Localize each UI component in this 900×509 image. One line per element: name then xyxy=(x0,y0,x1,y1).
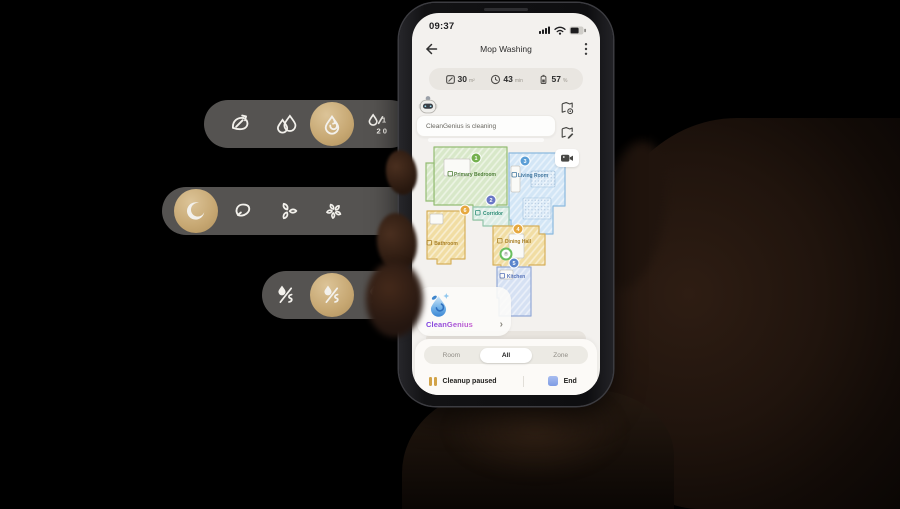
room-badge-5: 5 xyxy=(509,258,519,268)
bottom-sheet: RoomAllZone Cleanup paused End xyxy=(415,339,597,395)
scene-background: 1 2 0 09:37 Mop Washing 30m² 43min xyxy=(0,0,900,509)
map-settings-icon[interactable] xyxy=(555,99,579,117)
earpiece-speaker xyxy=(484,8,528,11)
room-badge-4: 4 xyxy=(513,224,523,234)
mode-tabs: RoomAllZone xyxy=(424,346,588,364)
svg-text:Living Room: Living Room xyxy=(518,173,549,179)
svg-text:6: 6 xyxy=(463,208,466,214)
controls-divider xyxy=(523,376,524,387)
tab-room[interactable]: Room xyxy=(426,348,478,363)
swirl-strong-icon[interactable] xyxy=(311,187,357,235)
svg-text:Kitchen: Kitchen xyxy=(507,274,525,280)
svg-text:Primary Bedroom: Primary Bedroom xyxy=(454,172,497,178)
room-annex xyxy=(426,163,434,201)
pause-label: Cleanup paused xyxy=(443,378,497,385)
tab-zone[interactable]: Zone xyxy=(535,348,587,363)
drop-swirl-icon[interactable] xyxy=(309,100,355,148)
robot-position xyxy=(501,249,512,260)
water-drop-icon xyxy=(426,290,451,322)
svg-text:Dining Hall: Dining Hall xyxy=(505,239,532,245)
svg-text:1: 1 xyxy=(382,115,386,124)
room-badge-2: 2 xyxy=(486,195,496,205)
room-label: Living Room xyxy=(512,172,549,179)
phone: 09:37 Mop Washing 30m² 43min 57% CleanGe… xyxy=(399,3,613,406)
suction-options-pill xyxy=(162,187,414,235)
thumb-blurred xyxy=(366,261,423,337)
room-badge-3: 3 xyxy=(520,156,530,166)
cleangenius-chip[interactable]: CleanGenius › xyxy=(417,287,511,336)
furniture xyxy=(511,166,520,192)
moon-icon[interactable] xyxy=(173,187,219,235)
svg-text:1: 1 xyxy=(474,156,477,162)
svg-text:3: 3 xyxy=(523,159,526,165)
drop-120-icon[interactable]: 1 2 0 xyxy=(355,100,401,148)
svg-text:2: 2 xyxy=(489,198,492,204)
tab-all[interactable]: All xyxy=(480,348,532,363)
svg-text:Bathroom: Bathroom xyxy=(434,241,458,247)
furniture xyxy=(430,214,443,224)
svg-text:0: 0 xyxy=(383,126,387,135)
end-square-icon xyxy=(548,376,558,386)
swirl-medium-icon[interactable] xyxy=(265,187,311,235)
pause-button[interactable]: Cleanup paused xyxy=(429,377,497,386)
end-button[interactable]: End xyxy=(548,376,577,386)
camera-icon[interactable] xyxy=(555,149,579,167)
carpet xyxy=(523,198,551,219)
room-badge-6: 6 xyxy=(460,205,470,215)
chevron-right-icon: › xyxy=(500,319,503,330)
svg-text:5: 5 xyxy=(512,261,515,267)
water-flow-medium-icon[interactable] xyxy=(309,271,355,319)
cleangenius-label: CleanGenius xyxy=(426,320,473,329)
svg-text:2: 2 xyxy=(376,126,380,135)
water-flow-low-icon[interactable] xyxy=(263,271,309,319)
cleanup-controls: Cleanup paused End xyxy=(429,372,583,390)
map-edit-icon[interactable] xyxy=(555,124,579,142)
hand-palm-highlight xyxy=(445,398,625,478)
room-label: Primary Bedroom xyxy=(448,171,497,178)
fan-swirl-icon[interactable] xyxy=(217,100,263,148)
end-label: End xyxy=(564,378,577,385)
svg-text:Corridor: Corridor xyxy=(483,211,503,217)
double-drop-icon[interactable] xyxy=(263,100,309,148)
room-badge-1: 1 xyxy=(471,153,481,163)
mop-wash-options-pill: 1 2 0 xyxy=(204,100,414,148)
phone-screen: 09:37 Mop Washing 30m² 43min 57% CleanGe… xyxy=(412,13,600,395)
map-tools xyxy=(554,99,580,167)
pause-icon xyxy=(429,377,437,386)
swirl-soft-icon[interactable] xyxy=(219,187,265,235)
